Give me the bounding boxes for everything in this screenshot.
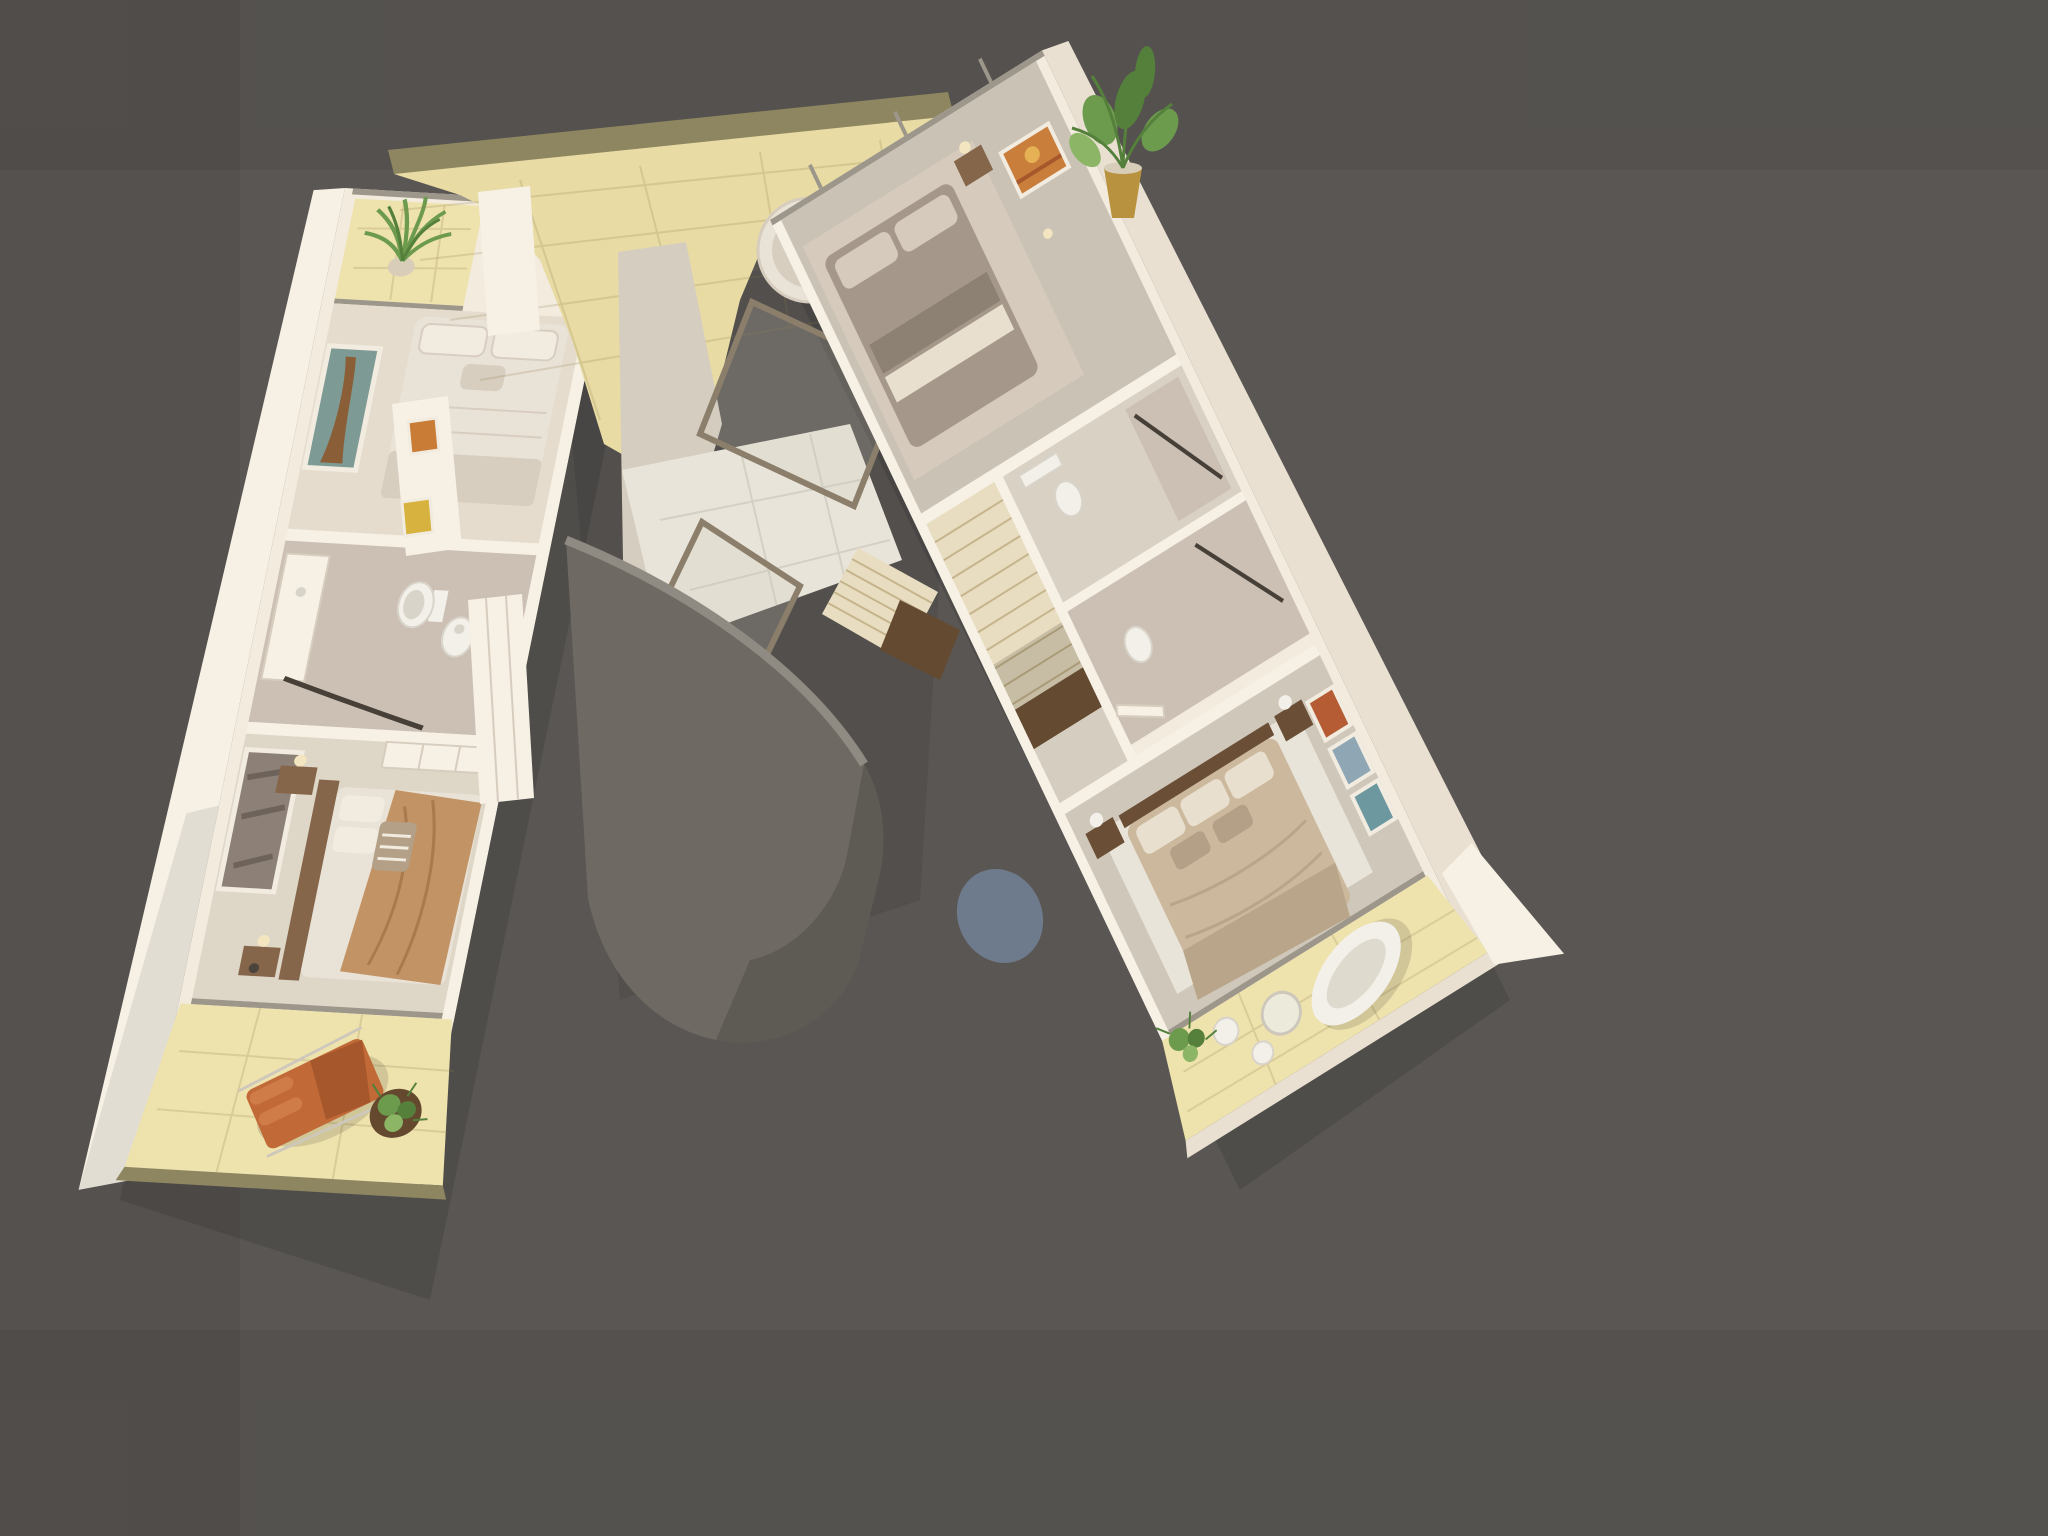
nightstand-top bbox=[275, 765, 317, 795]
vignette-bottom bbox=[0, 1330, 2048, 1536]
mini-art-yellow bbox=[402, 498, 433, 536]
pillow bbox=[338, 795, 386, 823]
pillow bbox=[418, 324, 489, 357]
nightstand-top bbox=[238, 946, 281, 978]
floorplan-render bbox=[0, 0, 2048, 1536]
mini-art-orange bbox=[408, 418, 439, 454]
terrace-fin-wall bbox=[478, 186, 540, 336]
render-stage bbox=[0, 0, 2048, 1536]
pillow bbox=[331, 826, 379, 854]
